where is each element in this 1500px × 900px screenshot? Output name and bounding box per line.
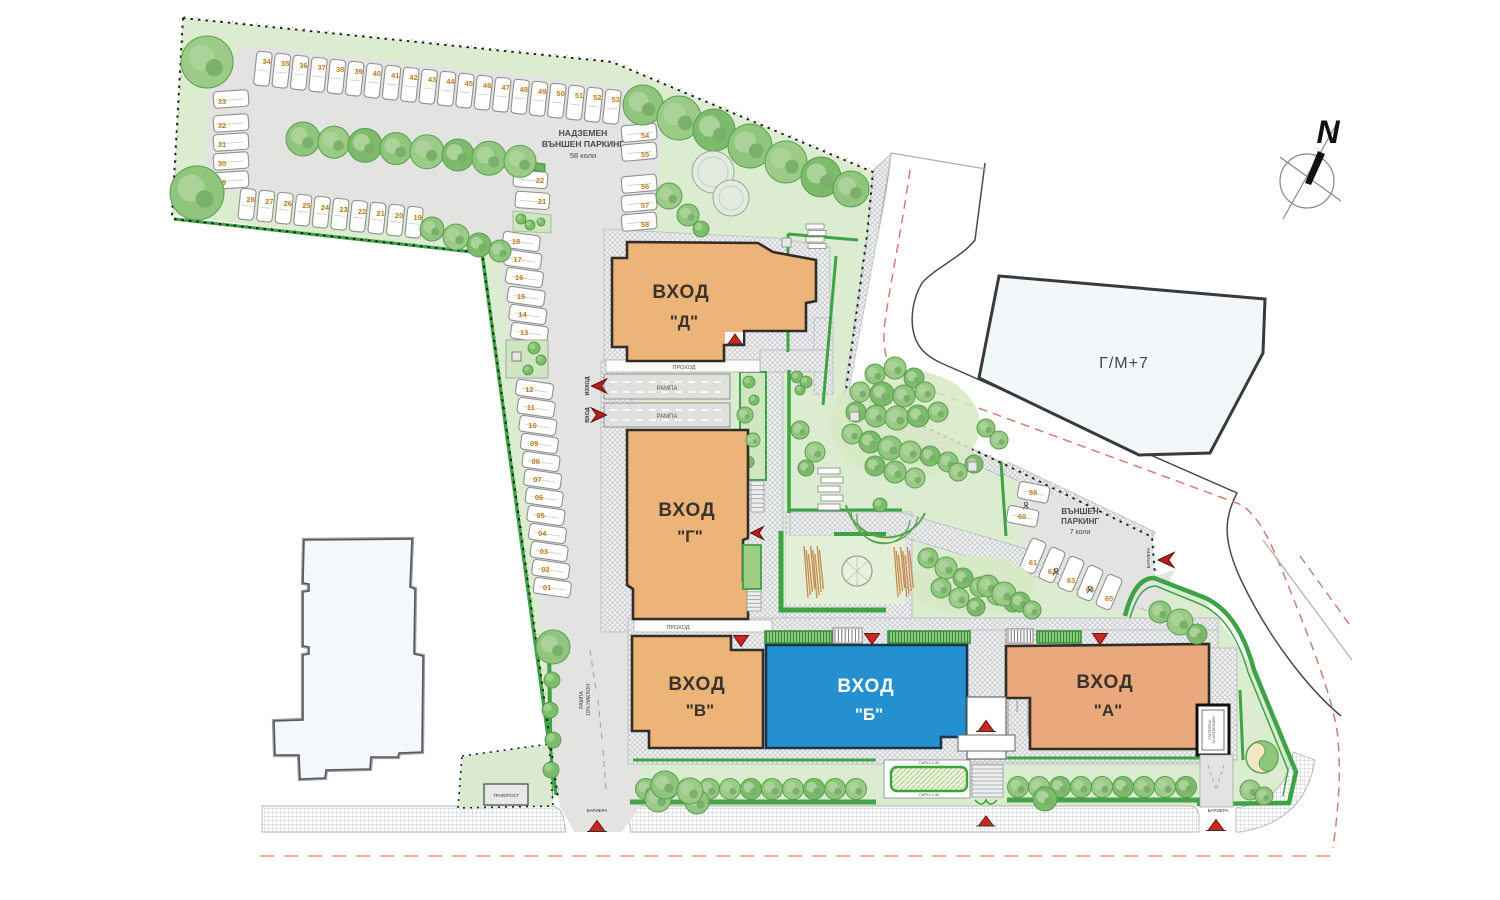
svg-text:36: 36	[299, 61, 307, 70]
svg-text:40: 40	[373, 69, 381, 78]
svg-text:ПРОХОД: ПРОХОД	[667, 625, 690, 631]
svg-text:55: 55	[641, 150, 649, 159]
svg-text:58 коли: 58 коли	[570, 151, 596, 160]
svg-text:46: 46	[483, 81, 491, 90]
svg-text:ЗА АВТОМОБИЛИ: ЗА АВТОМОБИЛИ	[1212, 716, 1216, 744]
svg-text:27: 27	[265, 197, 273, 206]
svg-text:56: 56	[641, 182, 649, 191]
svg-text:25: 25	[302, 201, 310, 210]
svg-text:НАДЗЕМЕН: НАДЗЕМЕН	[559, 128, 608, 138]
svg-text:ВХОД: ВХОД	[1076, 672, 1133, 693]
svg-text:02: 02	[541, 565, 549, 574]
svg-text:10: 10	[528, 421, 536, 430]
svg-text:60: 60	[1018, 512, 1026, 521]
svg-text:31: 31	[218, 140, 226, 149]
svg-text:12: 12	[525, 385, 533, 394]
svg-text:07: 07	[533, 475, 541, 484]
svg-text:ПАРКА 4.0В: ПАРКА 4.0В	[919, 793, 939, 797]
svg-text:ВЪНШЕН: ВЪНШЕН	[1061, 507, 1098, 516]
svg-text:ВХОД: ВХОД	[585, 407, 591, 422]
svg-text:41: 41	[391, 71, 399, 80]
svg-text:35: 35	[281, 59, 289, 68]
svg-text:РАМПА: РАМПА	[657, 414, 678, 420]
svg-text:11: 11	[527, 403, 535, 412]
svg-text:50: 50	[556, 89, 564, 98]
svg-text:01: 01	[543, 583, 551, 592]
svg-text:59: 59	[1029, 488, 1037, 497]
svg-text:52: 52	[593, 93, 601, 102]
svg-text:15: 15	[517, 292, 525, 301]
svg-text:43: 43	[428, 75, 436, 84]
svg-text:"Б": "Б"	[855, 705, 883, 724]
svg-text:58: 58	[641, 220, 649, 229]
svg-text:42: 42	[409, 73, 417, 82]
svg-text:22: 22	[358, 207, 366, 216]
svg-text:09: 09	[530, 439, 538, 448]
svg-text:ВХОД: ВХОД	[668, 674, 725, 695]
svg-text:ИЗХОД: ИЗХОД	[585, 376, 591, 395]
svg-text:34: 34	[263, 57, 272, 66]
svg-text:РАМПА: РАМПА	[579, 691, 585, 709]
svg-text:21: 21	[376, 209, 384, 218]
svg-text:19: 19	[414, 213, 422, 222]
svg-text:10% НАКЛОН: 10% НАКЛОН	[586, 684, 592, 716]
svg-text:13: 13	[520, 328, 528, 337]
svg-text:"Г": "Г"	[677, 527, 703, 546]
svg-text:37: 37	[318, 63, 326, 72]
svg-text:БАРИЕРА: БАРИЕРА	[1146, 548, 1151, 569]
svg-text:06: 06	[535, 493, 543, 502]
svg-text:ПАРКА 4.0В: ПАРКА 4.0В	[919, 761, 939, 765]
svg-text:03: 03	[540, 547, 548, 556]
svg-text:39: 39	[354, 67, 362, 76]
svg-text:18: 18	[512, 237, 520, 246]
svg-text:21: 21	[538, 197, 546, 206]
svg-text:БАРИЕРА: БАРИЕРА	[587, 808, 608, 813]
svg-text:ВХОД: ВХОД	[837, 676, 894, 697]
svg-text:08: 08	[532, 457, 540, 466]
svg-text:63: 63	[1067, 576, 1075, 585]
svg-text:20: 20	[395, 211, 403, 220]
svg-text:04: 04	[538, 529, 547, 538]
svg-text:"Д": "Д"	[670, 312, 698, 331]
svg-text:ВЪНШЕН ПАРКИНГ: ВЪНШЕН ПАРКИНГ	[542, 139, 624, 149]
svg-text:57: 57	[641, 201, 649, 210]
svg-text:14: 14	[518, 310, 527, 319]
svg-text:26: 26	[284, 199, 292, 208]
svg-text:49: 49	[538, 87, 546, 96]
svg-text:22: 22	[536, 176, 544, 185]
svg-text:16: 16	[515, 273, 523, 282]
svg-text:ВХОД: ВХОД	[652, 282, 709, 303]
svg-text:ВХОД: ВХОД	[658, 500, 715, 521]
svg-text:48: 48	[520, 85, 528, 94]
svg-text:38: 38	[336, 65, 344, 74]
svg-text:32: 32	[218, 121, 226, 130]
svg-text:30: 30	[218, 159, 226, 168]
svg-text:БАРИЕРА: БАРИЕРА	[1208, 808, 1229, 813]
svg-text:23: 23	[339, 205, 347, 214]
svg-text:05: 05	[537, 511, 545, 520]
svg-text:47: 47	[501, 83, 509, 92]
svg-text:7 коли: 7 коли	[1070, 529, 1091, 536]
svg-text:53: 53	[612, 95, 620, 104]
svg-text:24: 24	[321, 203, 330, 212]
svg-text:ПРОХОД: ПРОХОД	[673, 365, 696, 371]
svg-text:Г/М+7: Г/М+7	[1099, 355, 1149, 372]
svg-text:51: 51	[575, 91, 583, 100]
svg-text:33: 33	[218, 97, 226, 106]
svg-text:44: 44	[446, 77, 455, 86]
svg-text:N: N	[1316, 114, 1340, 150]
svg-text:17: 17	[513, 255, 521, 264]
svg-text:РАМПА: РАМПА	[657, 386, 678, 392]
svg-text:54: 54	[641, 131, 650, 140]
svg-text:"В": "В"	[686, 701, 714, 720]
svg-text:"А": "А"	[1094, 701, 1122, 720]
svg-text:ПАРКИНГ: ПАРКИНГ	[1061, 517, 1099, 526]
svg-text:65: 65	[1105, 594, 1113, 603]
svg-text:ТРАФОПОСТ: ТРАФОПОСТ	[493, 793, 519, 798]
svg-text:28: 28	[247, 195, 255, 204]
svg-text:61: 61	[1029, 558, 1037, 567]
svg-text:45: 45	[465, 79, 473, 88]
